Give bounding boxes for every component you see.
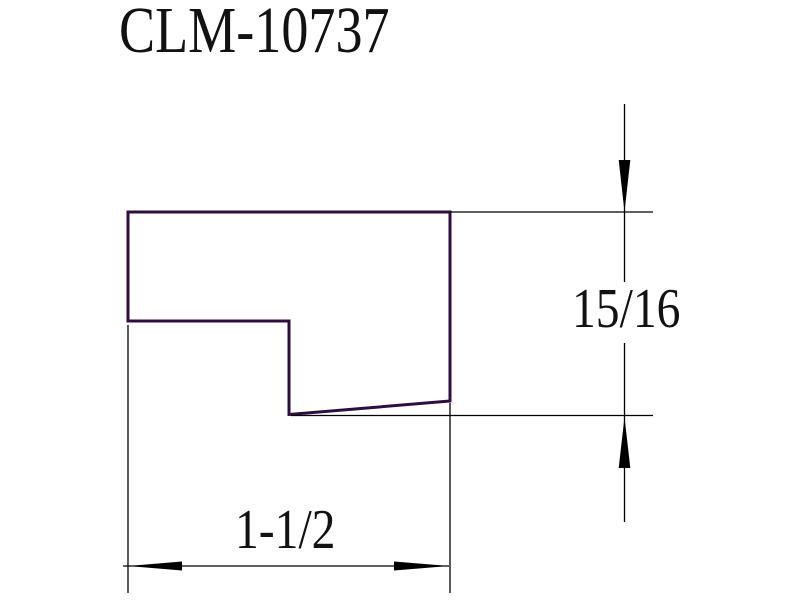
arrowhead-up-icon [619, 417, 631, 468]
arrowhead-left-icon [128, 562, 182, 571]
profile-outline [128, 212, 450, 415]
arrowhead-right-icon [394, 562, 449, 571]
dimension-label-width: 1-1/2 [235, 502, 335, 558]
arrowhead-down-icon [619, 160, 631, 212]
drawing-canvas: CLM-10737 15/16 1-1/2 [0, 0, 800, 600]
drawing-title: CLM-10737 [119, 0, 390, 64]
dimension-label-height: 15/16 [572, 281, 680, 337]
